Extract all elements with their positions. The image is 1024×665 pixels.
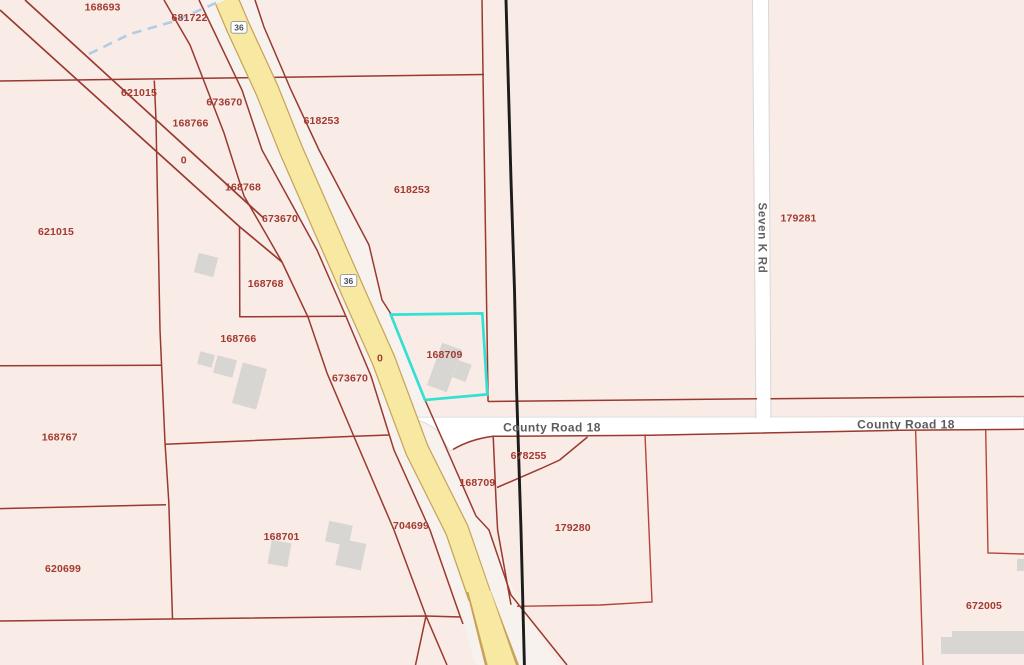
svg-text:618253: 618253	[304, 115, 340, 127]
svg-text:618253: 618253	[394, 184, 430, 196]
svg-text:672005: 672005	[966, 600, 1002, 612]
svg-text:168709: 168709	[459, 477, 495, 489]
svg-text:168768: 168768	[225, 182, 261, 194]
svg-text:168767: 168767	[42, 432, 78, 444]
svg-text:621015: 621015	[38, 226, 74, 238]
svg-text:168709: 168709	[427, 349, 463, 361]
svg-text:621015: 621015	[121, 87, 157, 99]
svg-text:168766: 168766	[173, 118, 209, 130]
svg-text:County Road 18: County Road 18	[503, 421, 601, 435]
svg-text:0: 0	[377, 353, 383, 365]
svg-text:County Road 18: County Road 18	[857, 418, 955, 432]
svg-text:620699: 620699	[45, 563, 81, 575]
svg-text:Seven K Rd: Seven K Rd	[756, 203, 768, 274]
svg-text:168766: 168766	[220, 333, 256, 345]
svg-text:179280: 179280	[555, 522, 591, 534]
svg-text:0: 0	[181, 155, 187, 167]
svg-text:168768: 168768	[248, 278, 284, 290]
svg-text:36: 36	[234, 23, 244, 33]
svg-text:168693: 168693	[85, 1, 121, 13]
svg-text:678255: 678255	[511, 450, 547, 462]
svg-text:168701: 168701	[264, 531, 300, 543]
svg-text:673670: 673670	[206, 97, 242, 109]
svg-text:673670: 673670	[332, 373, 368, 385]
svg-text:681722: 681722	[172, 12, 208, 24]
svg-text:704699: 704699	[393, 520, 429, 532]
svg-text:179281: 179281	[781, 213, 817, 225]
svg-text:673670: 673670	[262, 213, 298, 225]
svg-text:36: 36	[344, 276, 354, 286]
